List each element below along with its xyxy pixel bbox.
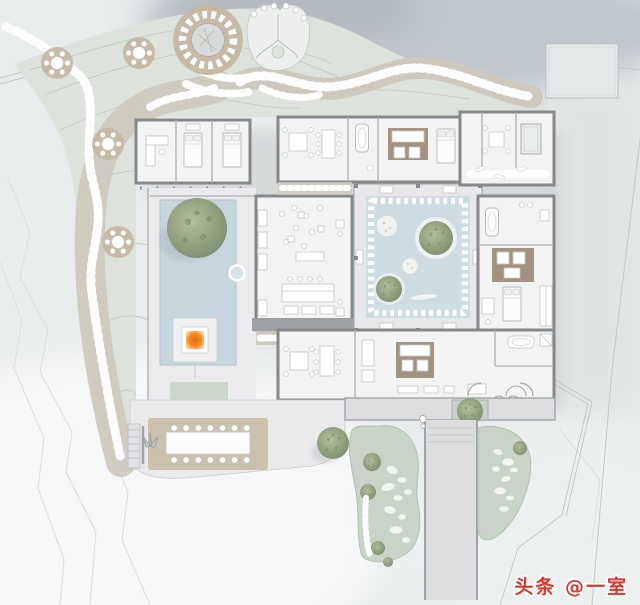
bed bbox=[184, 133, 202, 167]
block-north-suites bbox=[278, 117, 460, 195]
tree bbox=[419, 221, 453, 255]
pool-hall bbox=[148, 188, 256, 402]
island-pad bbox=[402, 258, 418, 274]
walkway-leg bbox=[425, 420, 477, 600]
shelving bbox=[258, 210, 267, 316]
planter-table bbox=[102, 226, 134, 258]
bathtub bbox=[486, 208, 499, 236]
round-pavilion bbox=[173, 5, 243, 75]
stepping-pad bbox=[377, 216, 398, 237]
tree bbox=[167, 198, 227, 258]
toilet bbox=[540, 210, 549, 221]
bed bbox=[503, 287, 521, 321]
spa-pavilion bbox=[247, 3, 309, 70]
bed bbox=[437, 129, 455, 163]
tree bbox=[363, 453, 381, 471]
site-plan-canvas: 头条 @一室 bbox=[0, 0, 640, 605]
long-dining-table bbox=[166, 432, 250, 454]
chaise bbox=[362, 340, 374, 382]
tree bbox=[383, 557, 393, 567]
bathtub bbox=[356, 124, 369, 152]
chair bbox=[159, 149, 164, 154]
dining-table-long bbox=[320, 346, 334, 376]
planter-table bbox=[41, 47, 73, 79]
sofa bbox=[400, 345, 430, 356]
block-lounge-kitchen bbox=[252, 196, 356, 345]
cabinets bbox=[284, 306, 334, 314]
main-building bbox=[136, 112, 554, 403]
architectural-site-plan: 头条 @一室 bbox=[0, 0, 640, 605]
planter-table bbox=[123, 37, 155, 69]
dining-table-long bbox=[322, 130, 335, 158]
watermark: 头条 @一室 bbox=[514, 575, 628, 598]
block-nw-guestrooms bbox=[136, 120, 250, 188]
dining-table bbox=[290, 352, 308, 370]
parking-pad bbox=[546, 44, 618, 98]
planter-table bbox=[92, 128, 124, 160]
block-ne-rooms bbox=[460, 112, 554, 185]
courtyard bbox=[354, 184, 482, 332]
tea-table bbox=[489, 132, 504, 147]
sofa bbox=[392, 131, 424, 142]
block-east-suite bbox=[478, 196, 554, 330]
bed bbox=[223, 133, 241, 167]
bar-counter bbox=[282, 284, 334, 302]
tree bbox=[513, 441, 527, 455]
block-south-rooms bbox=[278, 330, 554, 403]
pool-step-circle bbox=[230, 266, 245, 281]
tree bbox=[317, 427, 349, 459]
lawn-pad bbox=[170, 382, 228, 402]
side-table bbox=[482, 298, 494, 314]
figure bbox=[420, 416, 427, 429]
fire-glow bbox=[186, 331, 204, 349]
steps bbox=[128, 424, 140, 468]
tree bbox=[371, 541, 385, 555]
kitchen-island bbox=[296, 252, 324, 261]
dining-table bbox=[289, 133, 307, 151]
tree bbox=[376, 276, 402, 302]
